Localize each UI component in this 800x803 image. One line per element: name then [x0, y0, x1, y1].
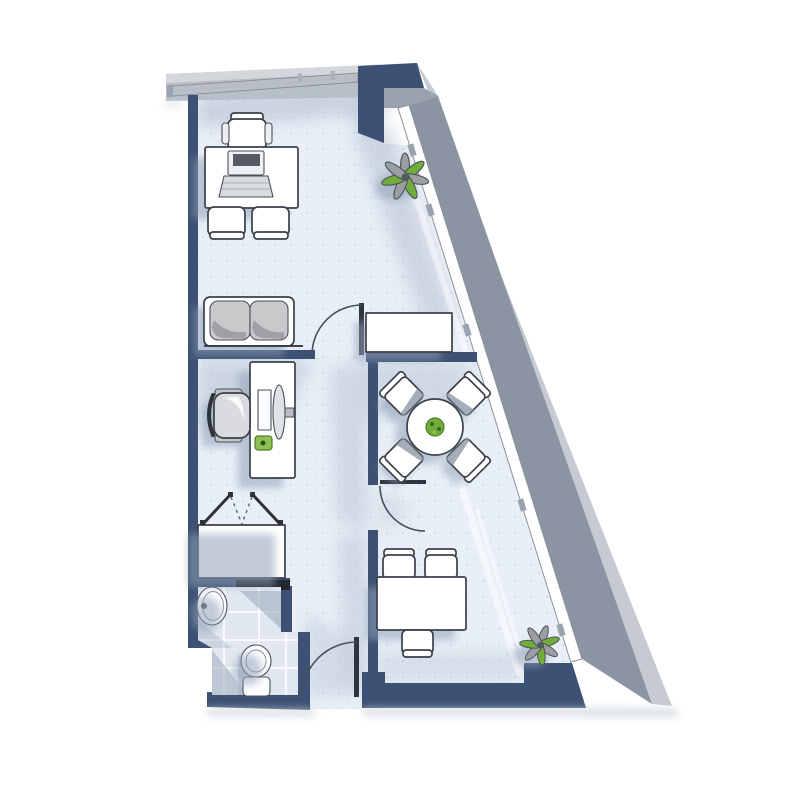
keyboard — [255, 436, 272, 450]
computer-desk — [250, 362, 295, 478]
chair — [252, 207, 289, 239]
top-window-mullion — [298, 73, 303, 82]
document-tray — [258, 390, 271, 430]
dining-left-wall — [368, 352, 378, 485]
floor-plan-drawing — [0, 0, 800, 803]
chair — [208, 207, 245, 239]
chair — [425, 549, 457, 579]
office-chair — [209, 389, 250, 442]
chair — [383, 549, 415, 579]
chair — [402, 630, 433, 657]
top-window-mullion — [331, 71, 336, 80]
sideboard — [366, 313, 452, 352]
sofa — [204, 297, 303, 346]
floor-plan-page — [0, 0, 800, 803]
top-window-end-cap — [167, 85, 173, 97]
table-plant — [426, 418, 444, 436]
desk — [377, 577, 466, 630]
